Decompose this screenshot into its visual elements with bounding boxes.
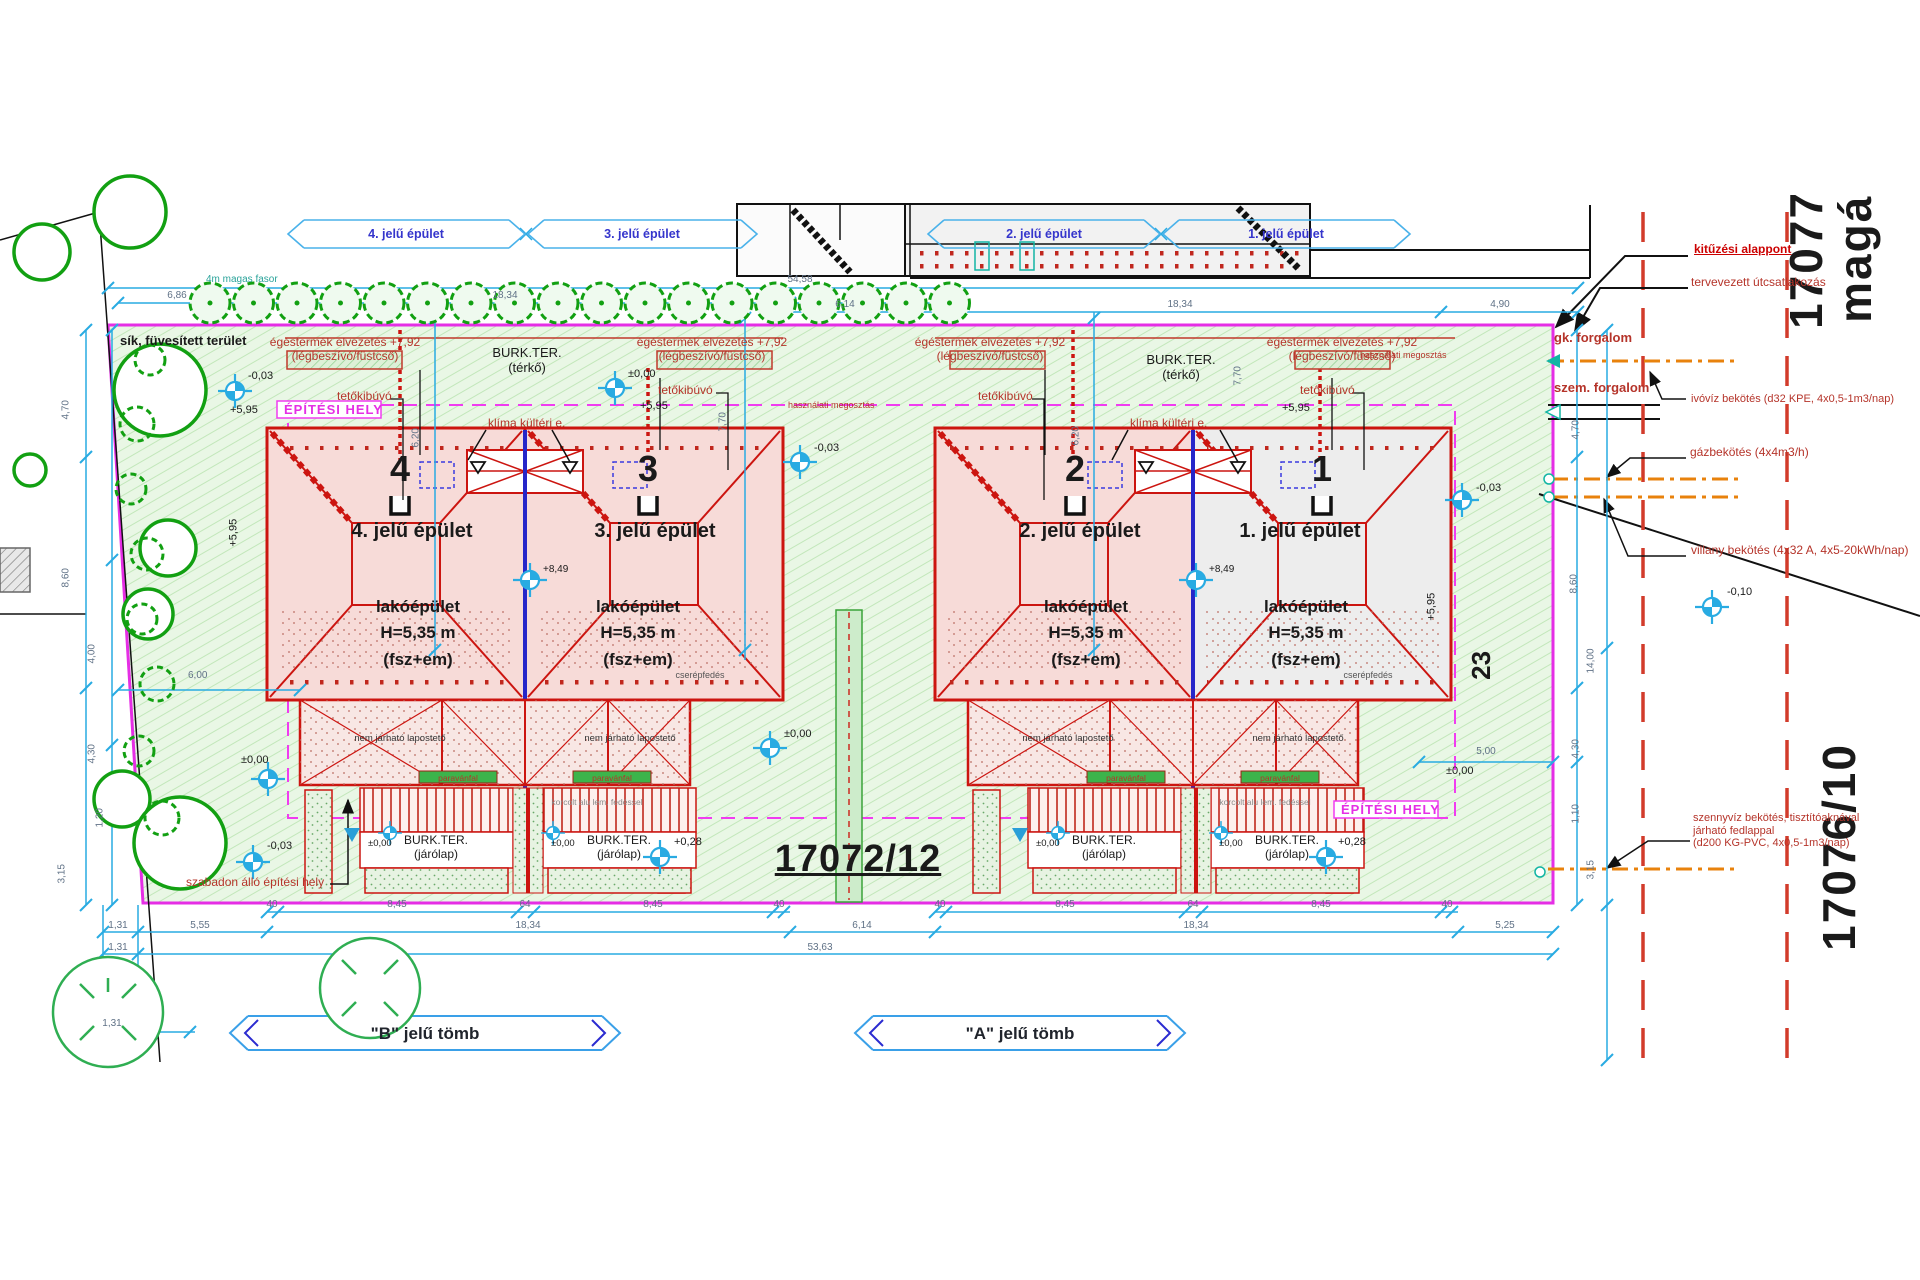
level-m003-1: -0,03 — [248, 370, 273, 383]
dim-614-top: 6,14 — [835, 299, 854, 311]
level-p028-a: +0,28 — [1338, 836, 1366, 849]
flue-label-1: égéstermék elvezetés +7,92(légbeszívó/fü… — [1267, 336, 1417, 364]
dim-1834-bottom-a: 18,34 — [1183, 920, 1208, 932]
parcel-number-17077: 17077 — [1780, 191, 1833, 329]
flue-label-4: égéstermék elvezetés +7,92(légbeszívó/fü… — [270, 336, 420, 364]
level-p849-a: +8,49 — [1209, 564, 1234, 576]
paved-terko-label-b: BURK.TER.(térkő) — [492, 346, 561, 376]
grass-area-label: sík, füvesített terület — [120, 334, 246, 349]
dim-131-1: 1,31 — [108, 920, 127, 932]
building-3-number: 3 — [638, 448, 658, 489]
dim-120-left: 1,20 — [95, 808, 107, 827]
screen-wall-label-a1: paravánfal — [1106, 774, 1146, 784]
callout-building-1: 1. jelű épület — [1248, 227, 1324, 241]
building-3-name: 3. jelű épület — [594, 520, 715, 543]
roof-hatch-label-2: tetőkibúvó — [978, 390, 1033, 404]
dim-620-b: 6,20 — [411, 428, 423, 447]
site-plan-canvas: 4. jelű épület 3. jelű épület 2. jelű ép… — [0, 0, 1920, 1280]
dim-1400-right: 14,00 — [1586, 648, 1598, 673]
roof-hatch-label-1: tetőkibúvó — [1300, 384, 1355, 398]
dim-555: 5,55 — [190, 920, 209, 932]
parcel-number-main: 17072/12 — [775, 838, 942, 882]
building-4-name: 4. jelű épület — [351, 520, 472, 543]
paved-jarolap-label-b2: BURK.TER.(járólap) — [587, 834, 651, 862]
dim-470-right: 4,70 — [1571, 420, 1583, 439]
paved-jarolap-label-a2: BURK.TER.(járólap) — [1255, 834, 1319, 862]
level-m003-4: -0,03 — [1476, 482, 1501, 495]
sewer-connection-label: szennyvíz bekötés, tisztítóaknávaljárhat… — [1693, 812, 1859, 850]
dim-500: 5,00 — [1476, 746, 1495, 758]
pedestrian-traffic-label: szem. forgalom — [1554, 381, 1649, 396]
dim-770-a: 7,70 — [1233, 366, 1245, 385]
flat-roof-label-b1: nem járható lapostető — [354, 734, 445, 745]
building-1-number: 1 — [1312, 448, 1332, 489]
site-plan-drawing — [0, 0, 1920, 1280]
building-2-number: 2 — [1065, 448, 1085, 489]
gas-connection-label: gázbekötés (4x4m3/h) — [1690, 446, 1809, 460]
dim-64-b: 64 — [519, 899, 530, 911]
level-zero-2: ±0,00 — [784, 728, 811, 741]
roof-hatch-label-4: tetőkibúvó — [337, 390, 392, 404]
dim-64-a: 64 — [1187, 899, 1198, 911]
building-3-spec: lakóépületH=5,35 m(fsz+em) — [596, 594, 680, 673]
dim-860-right: 8,60 — [1569, 574, 1581, 593]
callout-building-4: 4. jelű épület — [368, 227, 444, 241]
ac-unit-label-a: klíma kültéri e. — [1130, 417, 1207, 431]
ac-unit-label-b: klíma kültéri e. — [488, 417, 565, 431]
free-standing-label: szabadon álló építési hely — [186, 876, 324, 890]
callout-building-2: 2. jelű épület — [1006, 227, 1082, 241]
screen-wall-label-b1: paravánfal — [438, 774, 478, 784]
building-4-number: 4 — [390, 448, 410, 489]
dim-430-left: 4,30 — [87, 744, 99, 763]
level-zero-a1: ±0,00 — [1036, 839, 1060, 850]
level-p849-b: +8,49 — [543, 564, 568, 576]
dim-40-a1: 40 — [934, 899, 945, 911]
dim-40-a2: 40 — [1441, 899, 1452, 911]
dim-620-a: 6,20 — [1071, 426, 1083, 445]
building-zone-label-right: ÉPÍTÉSI HELY — [1341, 803, 1440, 818]
level-m010: -0,10 — [1727, 586, 1752, 599]
setout-point-label: kitűzési alappont — [1694, 243, 1791, 257]
building-2-spec: lakóépületH=5,35 m(fsz+em) — [1044, 594, 1128, 673]
flat-roof-label-a2: nem járható lapostető — [1252, 734, 1343, 745]
building-1-spec: lakóépületH=5,35 m(fsz+em) — [1264, 594, 1348, 673]
dim-686: 6,86 — [167, 290, 186, 302]
building-2-name: 2. jelű épület — [1019, 520, 1140, 543]
level-zero-4: ±0,00 — [1446, 765, 1473, 778]
level-zero-3: ±0,00 — [241, 754, 268, 767]
level-p595-3: +5,95 — [1282, 402, 1310, 415]
dim-1834-top-a: 18,34 — [1167, 299, 1192, 311]
level-p595-2: +5,95 — [640, 400, 668, 413]
dim-400-left: 4,00 — [87, 644, 99, 663]
level-p028-b: +0,28 — [674, 836, 702, 849]
dim-845-b1: 8,45 — [387, 899, 406, 911]
dim-845-a2: 8,45 — [1311, 899, 1330, 911]
dim-315-right: 3,15 — [1586, 860, 1598, 879]
usage-split-label-b: használati megosztás — [788, 400, 875, 410]
paved-jarolap-label-b1: BURK.TER.(járólap) — [404, 834, 468, 862]
dim-600: 6,00 — [188, 670, 207, 682]
parcel-number-23: 23 — [1467, 651, 1497, 680]
dim-1834-top-b: 18,34 — [492, 290, 517, 302]
tile-roof-label-b: cserépfedés — [675, 670, 724, 680]
dim-315-left: 3,15 — [57, 864, 69, 883]
level-p595-5: +5,95 — [1425, 593, 1438, 621]
dim-110-right: 1,10 — [1571, 804, 1583, 823]
callout-building-3: 3. jelű épület — [604, 227, 680, 241]
screen-wall-label-b2: paravánfal — [592, 774, 632, 784]
flue-label-2: égéstermék elvezetés +7,92(légbeszívó/fü… — [915, 336, 1065, 364]
dim-40-b2: 40 — [773, 899, 784, 911]
parcel-suffix-maga: magá — [1829, 195, 1882, 323]
level-zero-b2: ±0,00 — [551, 839, 575, 850]
road-connection-label: tervevezett útcsatlakozás — [1691, 276, 1826, 290]
paved-terko-label-a: BURK.TER.(térkő) — [1146, 353, 1215, 383]
dim-490: 4,90 — [1490, 299, 1509, 311]
screen-wall-label-a2: paravánfal — [1260, 774, 1300, 784]
flat-roof-label-a1: nem járható lapostető — [1022, 734, 1113, 745]
dim-1834-bottom-b: 18,34 — [515, 920, 540, 932]
level-p595-1: +5,95 — [230, 404, 258, 417]
dim-860-left: 8,60 — [61, 568, 73, 587]
block-b-label: "B" jelű tömb — [371, 1024, 480, 1044]
dim-430-right: 4,30 — [1571, 739, 1583, 758]
dim-131-3: 1,31 — [102, 1018, 121, 1030]
level-zero-a2: ±0,00 — [1219, 839, 1243, 850]
dim-770-b: 7,70 — [718, 412, 730, 431]
dim-845-b2: 8,45 — [643, 899, 662, 911]
level-m003-2: -0,03 — [814, 442, 839, 455]
dim-525: 5,25 — [1495, 920, 1514, 932]
dim-131-2: 1,31 — [108, 942, 127, 954]
dim-614-bottom: 6,14 — [852, 920, 871, 932]
level-zero-1: ±0,00 — [628, 368, 655, 381]
car-traffic-label: gk. forgalom — [1554, 331, 1632, 346]
dim-470-left: 4,70 — [61, 400, 73, 419]
existing-building — [737, 204, 1590, 278]
water-connection-label: ivóvíz bekötés (d32 KPE, 4x0,5-1m3/nap) — [1691, 393, 1894, 406]
level-m003-3: -0,03 — [267, 840, 292, 853]
flat-roof-label-b2: nem járható lapostető — [584, 734, 675, 745]
dim-40-b1: 40 — [266, 899, 277, 911]
dim-5363: 53,63 — [807, 942, 832, 954]
building-zone-label-left: ÉPÍTÉSI HELY — [284, 403, 383, 418]
paved-jarolap-label-a1: BURK.TER.(járólap) — [1072, 834, 1136, 862]
flue-label-3: égéstermék elvezetés +7,92(légbeszívó/fü… — [637, 336, 787, 364]
trees-bottom — [53, 938, 420, 1067]
block-a-label: "A" jelű tömb — [966, 1024, 1075, 1044]
level-zero-b1: ±0,00 — [368, 839, 392, 850]
roof-hatch-label-3: tetőkibúvó — [658, 384, 713, 398]
alu-roof-label-a: korcolt alu lem. fedéssel — [1219, 798, 1310, 808]
tile-roof-label-a: cserépfedés — [1343, 670, 1392, 680]
dim-845-a1: 8,45 — [1055, 899, 1074, 911]
power-connection-label: villany bekötés (4x32 A, 4x5-20kWh/nap) — [1691, 544, 1908, 558]
tree-row-label: 4m magas fasor — [206, 274, 278, 286]
dim-5458: 54,58 — [787, 274, 812, 286]
alu-roof-label-b: korcolt alu lem. fedéssel — [551, 798, 642, 808]
level-p595-4: +5,95 — [227, 519, 240, 547]
building-4-spec: lakóépületH=5,35 m(fsz+em) — [376, 594, 460, 673]
building-1-name: 1. jelű épület — [1239, 520, 1360, 543]
